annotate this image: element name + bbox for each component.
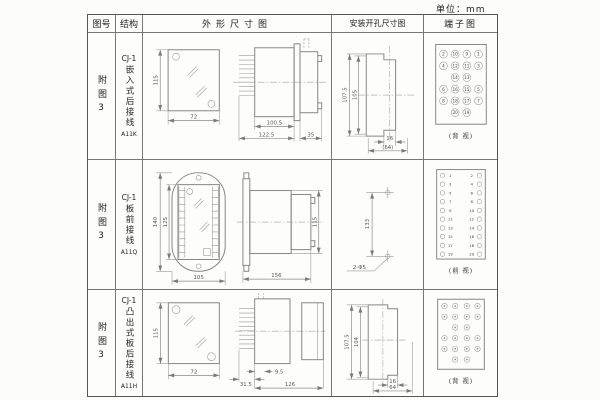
row1-structure-cell: CJ-1 嵌入式后接线 A11K	[116, 33, 143, 160]
row2-terminal-cell: 1 2 3 4 5 6 7 8 9 10 11 12	[424, 160, 497, 290]
terminal-number: 7	[449, 199, 452, 204]
row3-install-cell: 107.5 104 16 64	[332, 290, 424, 396]
type-code: A11K	[121, 131, 137, 138]
install-drawing-a11q: 133 2-Φ5	[333, 161, 423, 289]
terminal-number: 4	[470, 181, 473, 186]
terminal-number: 12	[452, 63, 458, 68]
dim-label: 72	[190, 369, 197, 375]
header-outline: 外形尺寸图	[143, 15, 332, 33]
dim-label: 105	[193, 275, 203, 281]
outline-drawing-a11h: 115 72 31.5 9.5 126	[144, 291, 331, 395]
terminal-diagram-rear: (背 视)	[425, 291, 496, 395]
view-label: (前 视)	[449, 265, 473, 274]
terminal-number: 12	[469, 216, 474, 221]
terminal-number: 14	[469, 225, 474, 230]
row2-install-cell: 133 2-Φ5	[332, 160, 424, 290]
hatch-mark	[193, 198, 209, 231]
mount-hole-icon	[207, 100, 214, 107]
dim-label: 107.5	[342, 87, 348, 102]
row3-terminal-cell: (背 视)	[424, 290, 497, 396]
mount-hole-icon	[196, 175, 201, 180]
terminal-number: 20	[469, 251, 474, 256]
dim-label: 115	[153, 75, 159, 85]
row3-outline-cell: 115 72 31.5 9.5 126	[143, 290, 332, 396]
terminal-number: 11	[448, 216, 453, 221]
terminal-number: 3	[477, 63, 480, 68]
model-label: CJ-1	[122, 193, 137, 202]
dim-label: 9.5	[274, 369, 283, 375]
mount-hole-icon	[172, 306, 180, 314]
terminal-pins: 1 2 3 4 5 6 7 8 9 10 11 12	[440, 172, 481, 256]
row2-structure-cell: CJ-1 板前接线 A11Q	[116, 160, 143, 290]
dim-label: 133	[365, 218, 371, 228]
screw-icon	[258, 293, 263, 299]
dim-label: 115	[153, 328, 159, 338]
dim-label: 122.5	[258, 132, 273, 138]
terminal-number: 9	[449, 207, 452, 212]
spec-sheet-page: 单位：mm 图号 结构 外形尺寸图 安装开孔尺寸图 端子图 附图3 CJ-1 嵌…	[0, 0, 600, 400]
mount-hole-icon	[172, 53, 179, 60]
structure-desc: 凸出式板后接线	[123, 307, 135, 381]
install-drawing-a11h: 107.5 104 16 64	[333, 291, 423, 395]
dim-label: 115	[312, 216, 318, 226]
terminal-strip	[178, 186, 217, 257]
header-install: 安装开孔尺寸图	[332, 15, 424, 33]
terminal-number: 3	[449, 181, 452, 186]
terminal-number: 6	[442, 86, 445, 91]
terminal-number: 19	[448, 251, 453, 256]
terminal-number: 5	[477, 86, 480, 91]
mount-hole-icon	[207, 353, 215, 361]
mount-hole-icon	[186, 188, 192, 194]
dim-label: 64	[389, 385, 396, 391]
mount-hole-icon	[196, 263, 201, 268]
structure-desc: 嵌入式后接线	[123, 65, 135, 128]
dim-label: 105	[352, 89, 358, 99]
dim-label: 16	[386, 136, 393, 142]
terminal-number: 15	[464, 86, 470, 91]
dim-label: 125	[163, 216, 169, 226]
dim-label: 104	[353, 336, 359, 347]
terminal-number: 16	[452, 86, 458, 91]
row1-install-cell: 107.5 105 16 (64)	[332, 33, 424, 160]
outline-drawing-a11q: 140 125 105 156 115	[144, 161, 331, 289]
terminal-number: 1	[477, 51, 480, 56]
header-terminal: 端子图	[424, 15, 497, 33]
terminal-number: 14	[452, 75, 458, 80]
terminal-number: 10	[469, 207, 474, 212]
type-code: A11Q	[121, 249, 137, 256]
hatch-mark	[184, 316, 207, 348]
terminal-comb	[238, 309, 254, 349]
terminal-number: 17	[448, 242, 453, 247]
terminal-number: 8	[470, 199, 473, 204]
terminal-number: 13	[464, 75, 470, 80]
hole-spec-label: 2-Φ5	[352, 265, 365, 271]
terminal-number: 6	[470, 190, 473, 195]
terminal-number: 7	[477, 98, 480, 103]
figure-number: 附图3	[95, 203, 108, 246]
terminal-number: 15	[448, 234, 453, 239]
terminal-number: 2	[470, 172, 473, 177]
dim-label: 35	[307, 132, 314, 138]
terminal-number: 1	[449, 172, 452, 177]
terminal-diagram-rear: 2 10 9 1 4 12 11 3 14 13 6 16 15 5	[425, 34, 496, 159]
terminal-diagram-front: 1 2 3 4 5 6 7 8 9 10 11 12	[425, 161, 496, 289]
terminal-pins: 2 10 9 1 4 12 11 3 14 13 6 16 15 5	[440, 50, 483, 116]
figure-number: 附图3	[95, 322, 108, 365]
row2-figure-cell: 附图3	[88, 160, 116, 290]
model-label: CJ-1	[122, 296, 137, 305]
terminal-number: 20	[452, 110, 458, 115]
dim-label: 72	[190, 114, 197, 120]
row3-figure-cell: 附图3	[88, 290, 116, 396]
outline-drawing-a11k: 115 72 100.5 122.5 35	[144, 34, 331, 159]
spec-table: 图号 结构 外形尺寸图 安装开孔尺寸图 端子图 附图3 CJ-1 嵌入式后接线 …	[87, 14, 498, 397]
hatch-mark	[187, 66, 206, 97]
header-figure: 图号	[88, 15, 116, 33]
dim-label: 156	[271, 273, 282, 279]
terminal-pins	[442, 303, 481, 362]
header-structure: 结构	[116, 15, 143, 33]
dim-label: (64)	[382, 144, 393, 150]
view-label: (背 视)	[449, 130, 473, 139]
model-label: CJ-1	[122, 54, 137, 63]
dim-label: 126	[284, 382, 295, 388]
terminal-number: 5	[449, 190, 452, 195]
screw-icon	[303, 38, 308, 47]
row2-outline-cell: 140 125 105 156 115	[143, 160, 332, 290]
terminal-comb	[238, 55, 254, 95]
dim-label: 140	[153, 216, 159, 227]
terminal-number: 18	[469, 242, 474, 247]
terminal-number: 19	[464, 110, 470, 115]
terminal-number: 11	[464, 63, 470, 68]
row1-figure-cell: 附图3	[88, 33, 116, 160]
figure-number: 附图3	[95, 75, 108, 118]
terminal-number: 16	[469, 234, 474, 239]
structure-desc: 板前接线	[123, 204, 135, 246]
row1-outline-cell: 115 72 100.5 122.5 35	[143, 33, 332, 160]
terminal-number: 9	[465, 51, 468, 56]
dim-label: 100.5	[266, 120, 281, 126]
terminal-number: 18	[452, 98, 458, 103]
dim-label: 31.5	[239, 382, 251, 388]
terminal-number: 13	[448, 225, 453, 230]
terminal-number: 17	[464, 98, 470, 103]
row1-terminal-cell: 2 10 9 1 4 12 11 3 14 13 6 16 15 5	[424, 33, 497, 160]
install-drawing-a11k: 107.5 105 16 (64)	[333, 34, 423, 159]
terminal-number: 2	[442, 51, 445, 56]
terminal-number: 10	[452, 51, 458, 56]
view-label: (背 视)	[449, 376, 473, 385]
row3-structure-cell: CJ-1 凸出式板后接线 A11H	[116, 290, 143, 396]
dim-label: 107.5	[344, 334, 350, 349]
type-code: A11H	[121, 383, 137, 390]
terminal-number: 8	[442, 98, 445, 103]
terminal-number: 4	[442, 63, 445, 68]
